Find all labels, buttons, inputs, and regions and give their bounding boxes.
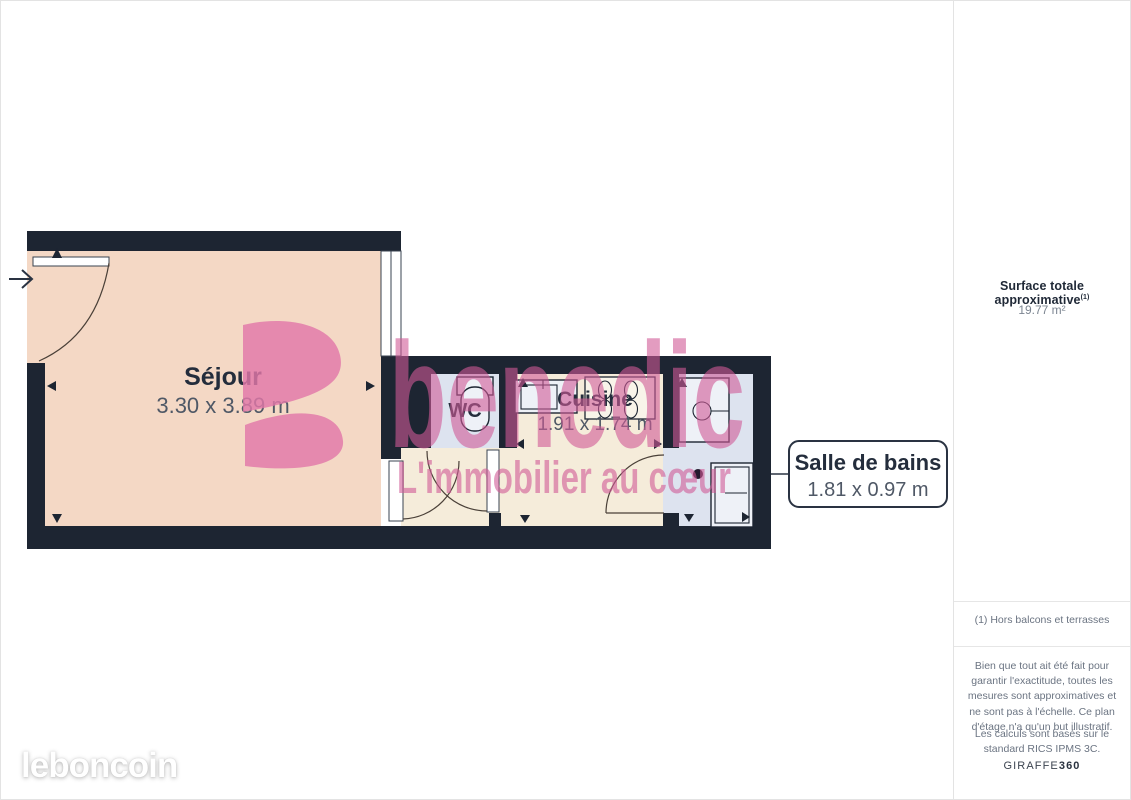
leboncoin-logo: leboncoin bbox=[21, 746, 177, 786]
disclaimer-text: Bien que tout ait été fait pour garantir… bbox=[954, 659, 1130, 735]
standard-note: Les calculs sont basés sur le standard R… bbox=[954, 727, 1130, 757]
giraffe360-name: GIRAFFE bbox=[1003, 760, 1058, 772]
bathroom-callout: Salle de bains 1.81 x 0.97 m bbox=[771, 441, 947, 507]
bathroom-label: Salle de bains bbox=[795, 450, 942, 475]
bathroom-dims: 1.81 x 0.97 m bbox=[807, 479, 928, 501]
wall-bottom bbox=[27, 526, 771, 549]
info-sidebar: Surface totale approximative(1) 19.77 m²… bbox=[953, 1, 1130, 800]
wall-top bbox=[27, 231, 401, 251]
surface-value: 19.77 m² bbox=[954, 303, 1130, 317]
footnote: (1) Hors balcons et terrasses bbox=[954, 614, 1130, 626]
giraffe360-suffix: 360 bbox=[1059, 760, 1081, 772]
wall-left bbox=[27, 363, 45, 526]
wall-stub-hall bbox=[489, 513, 501, 526]
giraffe360-logo: GIRAFFE360 bbox=[954, 760, 1130, 772]
surface-title-sup: (1) bbox=[1081, 294, 1090, 301]
floor-plan: Séjour 3.30 x 3.89 m WC Cuisine 1.91 x 1… bbox=[1, 1, 961, 800]
sejour-entry-alcove bbox=[27, 251, 45, 363]
wall-stub-bath bbox=[663, 513, 679, 526]
divider bbox=[954, 601, 1130, 602]
floorplan-page: Séjour 3.30 x 3.89 m WC Cuisine 1.91 x 1… bbox=[0, 0, 1131, 800]
wall-right bbox=[753, 356, 771, 526]
divider bbox=[954, 646, 1130, 647]
watermark-tagline: L'immobilier au cœur bbox=[397, 452, 731, 503]
